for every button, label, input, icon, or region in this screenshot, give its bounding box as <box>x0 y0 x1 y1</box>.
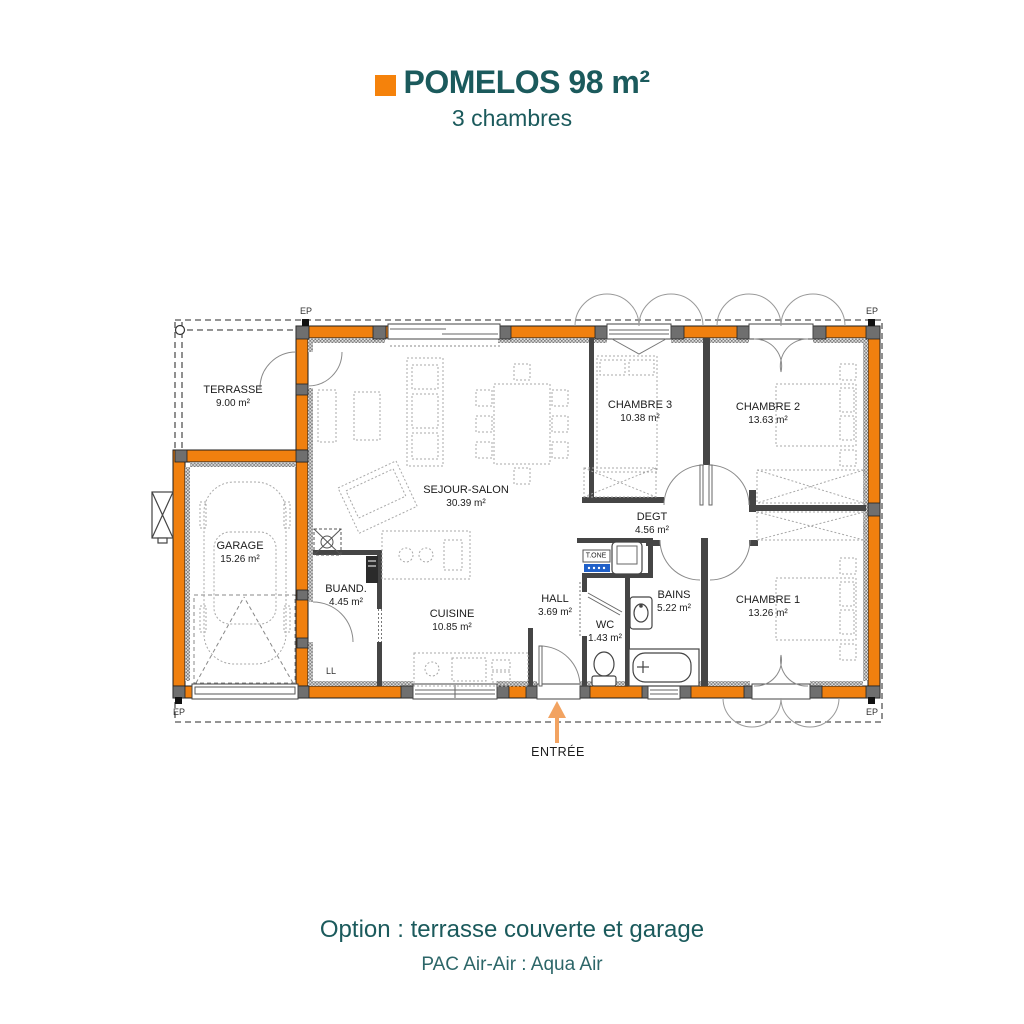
pac-line: PAC Air-Air : Aqua Air <box>0 954 1024 976</box>
vent-box-icon <box>152 492 173 543</box>
floor-plan-drawing <box>0 0 1024 1024</box>
washbasin-icon <box>630 597 652 629</box>
door-swings <box>260 339 808 686</box>
floor-plan-page: POMELOS 98 m² 3 chambres <box>0 0 1024 1024</box>
room-label-bains: BAINS5.22 m² <box>657 589 691 615</box>
room-label-hall: HALL3.69 m² <box>538 593 572 619</box>
room-label-terrasse: TERRASSE9.00 m² <box>203 384 262 410</box>
toilet-icon <box>592 652 616 686</box>
option-line: Option : terrasse couverte et garage <box>0 916 1024 944</box>
footer: Option : terrasse couverte et garage PAC… <box>0 916 1024 976</box>
tone-unit-label: T.ONE <box>586 553 607 560</box>
room-label-degt: DEGT4.56 m² <box>635 511 669 537</box>
ep-label-bottom-right: EP <box>866 707 878 717</box>
room-label-buanderie: BUAND.4.45 m² <box>325 583 367 609</box>
room-label-sejour-salon: SEJOUR-SALON30.39 m² <box>423 484 509 510</box>
room-label-cuisine: CUISINE10.85 m² <box>430 608 475 634</box>
room-label-garage: GARAGE15.26 m² <box>216 540 263 566</box>
bathtub-icon <box>629 649 699 686</box>
ep-label-top-right: EP <box>866 306 878 316</box>
room-label-chambre-2: CHAMBRE 213.63 m² <box>736 401 800 427</box>
windows <box>192 324 813 699</box>
garage-door-swing <box>194 595 295 683</box>
ep-label-top-left: EP <box>300 306 312 316</box>
terrace-post <box>176 326 185 335</box>
washing-machine-label: LL <box>326 666 336 676</box>
room-label-wc: WC1.43 m² <box>588 619 622 645</box>
room-label-chambre-3: CHAMBRE 310.38 m² <box>608 399 672 425</box>
room-label-chambre-1: CHAMBRE 113.26 m² <box>736 594 800 620</box>
water-heater-icon <box>366 556 378 583</box>
entrance-label: ENTRÉE <box>531 745 585 759</box>
ep-label-bottom-left: EP <box>173 707 185 717</box>
